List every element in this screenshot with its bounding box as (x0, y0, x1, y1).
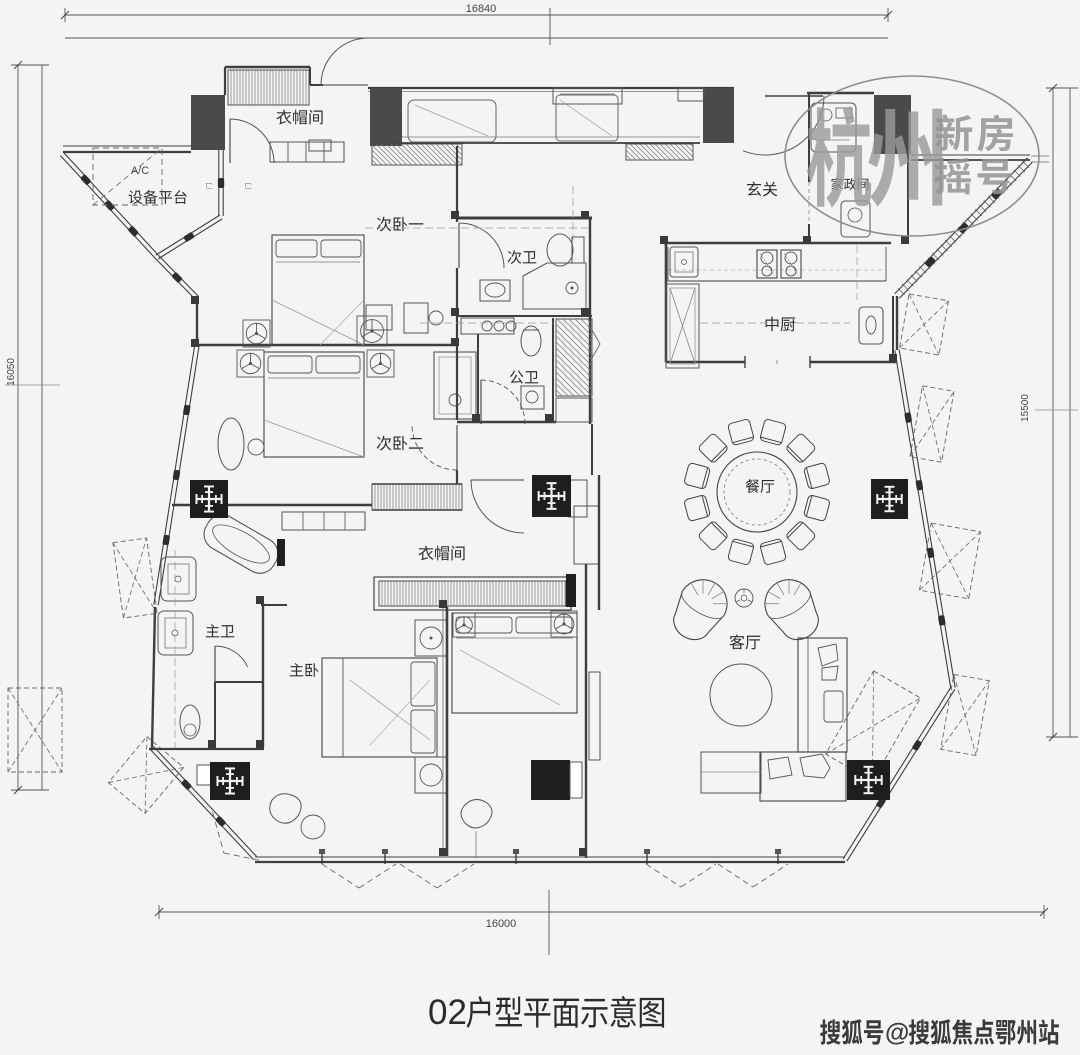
svg-text:A/C: A/C (131, 165, 149, 177)
svg-text:02: 02 (428, 993, 467, 1032)
svg-text:16840: 16840 (466, 3, 497, 15)
svg-text:@: @ (885, 1019, 909, 1047)
svg-text:16050: 16050 (6, 358, 17, 386)
svg-text:15500: 15500 (1020, 394, 1031, 422)
svg-text:16000: 16000 (486, 918, 517, 930)
